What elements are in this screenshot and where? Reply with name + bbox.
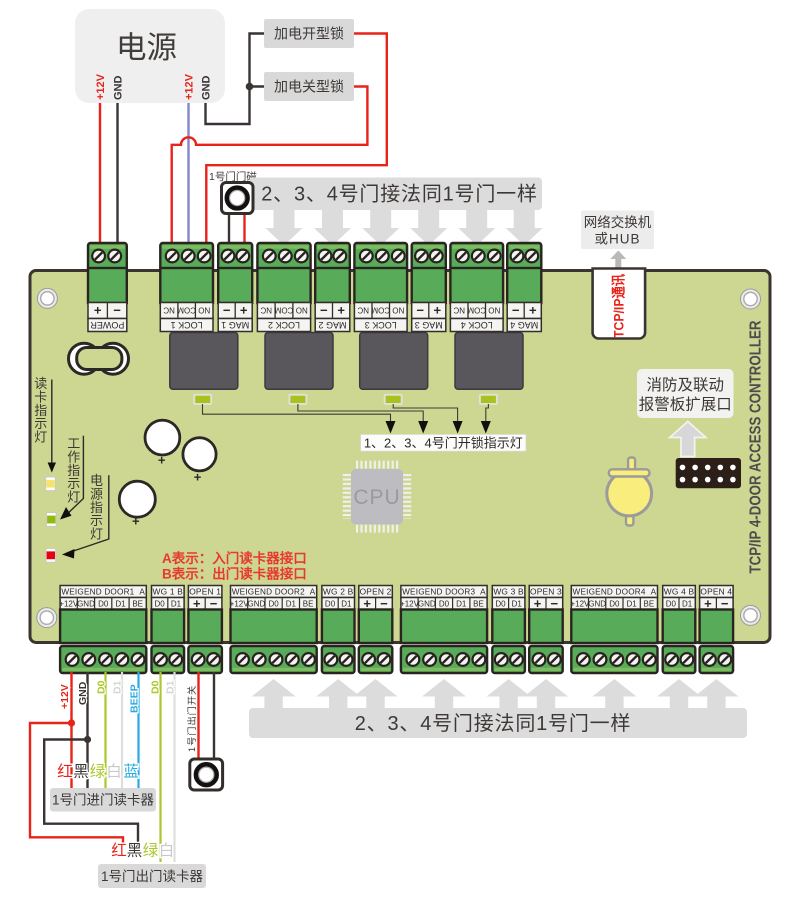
svg-text:D1: D1 (286, 599, 297, 608)
svg-text:WEIGEND DOOR4 A: WEIGEND DOOR4 A (573, 588, 657, 597)
svg-text:D0: D0 (150, 680, 162, 694)
svg-text:GND: GND (588, 599, 606, 608)
svg-text:COM: COM (274, 306, 293, 315)
svg-text:+: + (93, 303, 101, 318)
svg-text:NC: NC (453, 306, 465, 315)
svg-text:D1: D1 (112, 680, 124, 694)
svg-text:BE: BE (644, 599, 655, 608)
svg-text:GND: GND (201, 76, 213, 101)
svg-text:NO: NO (392, 306, 404, 315)
svg-text:红: 红 (57, 763, 73, 781)
svg-text:D0: D0 (98, 599, 109, 608)
svg-text:B表示：出门读卡器接口: B表示：出门读卡器接口 (162, 566, 307, 582)
svg-text:WEIGEND DOOR3 A: WEIGEND DOOR3 A (402, 588, 486, 597)
svg-text:D1: D1 (115, 599, 126, 608)
svg-text:+: + (239, 303, 247, 318)
svg-text:−: − (320, 303, 328, 318)
svg-text:BE: BE (132, 599, 143, 608)
svg-text:WG 2 B: WG 2 B (323, 587, 354, 597)
svg-text:电源: 电源 (116, 31, 177, 65)
svg-text:GND: GND (77, 599, 95, 608)
svg-text:D1: D1 (165, 680, 177, 694)
svg-text:+: + (337, 303, 345, 318)
svg-text:绿: 绿 (143, 842, 159, 860)
svg-text:BE: BE (473, 599, 484, 608)
svg-text:NC: NC (163, 306, 175, 315)
svg-text:D0: D0 (155, 599, 166, 608)
svg-text:白: 白 (106, 763, 122, 781)
svg-text:OPEN 3: OPEN 3 (530, 587, 562, 597)
svg-text:NC: NC (357, 306, 369, 315)
svg-text:COM: COM (177, 306, 196, 315)
svg-text:+: + (158, 453, 166, 468)
svg-text:D1: D1 (627, 599, 638, 608)
svg-text:WG 1 B: WG 1 B (153, 587, 184, 597)
svg-text:LOCK 2: LOCK 2 (268, 320, 300, 330)
svg-text:白: 白 (159, 842, 175, 860)
svg-text:MAG 3: MAG 3 (415, 320, 443, 330)
svg-text:+12V: +12V (95, 73, 107, 100)
svg-text:+: + (194, 470, 202, 485)
svg-text:BE: BE (303, 599, 314, 608)
svg-text:绿: 绿 (90, 763, 106, 781)
svg-text:D0: D0 (325, 599, 336, 608)
svg-text:NO: NO (488, 306, 500, 315)
svg-text:D0: D0 (439, 599, 450, 608)
svg-text:LOCK 4: LOCK 4 (461, 320, 493, 330)
svg-text:报警板扩展口: 报警板扩展口 (639, 396, 732, 414)
svg-text:+: + (132, 514, 140, 529)
svg-text:CPU: CPU (353, 486, 400, 509)
svg-text:LOCK 1: LOCK 1 (171, 320, 203, 330)
svg-text:WG 4 B: WG 4 B (664, 587, 695, 597)
svg-text:1、2、3、4号门开锁指示灯: 1、2、3、4号门开锁指示灯 (364, 435, 523, 450)
svg-text:−: − (113, 303, 121, 318)
svg-text:OPEN 1: OPEN 1 (189, 587, 221, 597)
svg-text:+12V: +12V (230, 599, 250, 608)
svg-text:WEIGEND DOOR1 A: WEIGEND DOOR1 A (61, 588, 145, 597)
svg-text:+: + (529, 303, 537, 318)
svg-text:TCP/IP 4-DOOR ACCESS CONTROLL: TCP/IP 4-DOOR ACCESS CONTROLLER (748, 321, 765, 574)
svg-text:D1: D1 (171, 599, 182, 608)
svg-text:MAG 4: MAG 4 (510, 320, 538, 330)
svg-text:NO: NO (296, 306, 308, 315)
svg-text:D0: D0 (609, 599, 620, 608)
svg-text:蓝: 蓝 (123, 763, 139, 781)
svg-text:−: − (416, 303, 424, 318)
svg-text:TCP/IP通讯: TCP/IP通讯 (611, 274, 627, 338)
svg-text:D0: D0 (495, 599, 506, 608)
svg-text:或HUB: 或HUB (594, 232, 640, 247)
svg-text:GND: GND (418, 599, 436, 608)
svg-text:1号门出门开关: 1号门出门开关 (186, 685, 197, 752)
svg-text:−: − (222, 303, 230, 318)
svg-text:GND: GND (77, 681, 89, 705)
svg-text:GND: GND (113, 76, 125, 101)
svg-text:NO: NO (198, 306, 210, 315)
svg-text:加电关型锁: 加电关型锁 (274, 79, 344, 95)
svg-text:D0: D0 (268, 599, 279, 608)
svg-text:黑: 黑 (127, 843, 143, 860)
svg-text:WG 3 B: WG 3 B (493, 587, 524, 597)
svg-text:+12V: +12V (400, 599, 420, 608)
svg-text:MAG 2: MAG 2 (318, 320, 346, 330)
svg-text:D1: D1 (456, 599, 467, 608)
svg-text:2、3、4号门接法同1号门一样: 2、3、4号门接法同1号门一样 (355, 712, 632, 735)
svg-text:+12V: +12V (59, 599, 79, 608)
svg-text:+12V: +12V (184, 73, 196, 100)
svg-text:D0: D0 (96, 680, 108, 694)
svg-text:COM: COM (467, 306, 486, 315)
svg-text:红: 红 (111, 842, 127, 860)
svg-text:网络交换机: 网络交换机 (584, 214, 652, 230)
svg-text:D1: D1 (512, 599, 523, 608)
svg-text:+: + (433, 303, 441, 318)
svg-text:1号门出门读卡器: 1号门出门读卡器 (101, 869, 204, 884)
svg-text:COM: COM (371, 306, 390, 315)
svg-text:LOCK 3: LOCK 3 (365, 320, 397, 330)
svg-text:BEEP: BEEP (129, 684, 141, 713)
svg-text:POWER: POWER (90, 320, 125, 330)
svg-text:黑: 黑 (73, 764, 89, 781)
svg-text:−: − (512, 303, 520, 318)
svg-text:+12V: +12V (59, 684, 71, 709)
svg-text:MAG 1: MAG 1 (221, 320, 249, 330)
svg-text:A表示：入门读卡器接口: A表示：入门读卡器接口 (162, 550, 307, 566)
svg-text:读卡指示灯: 读卡指示灯 (34, 376, 47, 445)
svg-text:OPEN 4: OPEN 4 (700, 587, 732, 597)
svg-text:D1: D1 (682, 599, 693, 608)
svg-text:WEIGEND DOOR2 A: WEIGEND DOOR2 A (232, 588, 316, 597)
svg-text:加电开型锁: 加电开型锁 (274, 26, 344, 42)
svg-text:2、3、4号门接法同1号门一样: 2、3、4号门接法同1号门一样 (261, 183, 538, 206)
svg-text:GND: GND (247, 599, 265, 608)
svg-text:电源指示灯: 电源指示灯 (90, 473, 103, 542)
svg-text:+12V: +12V (570, 599, 590, 608)
svg-text:NC: NC (260, 306, 272, 315)
svg-text:1号门进门读卡器: 1号门进门读卡器 (52, 793, 155, 808)
svg-text:工作指示灯: 工作指示灯 (67, 436, 80, 505)
svg-text:D0: D0 (666, 599, 677, 608)
svg-text:消防及联动: 消防及联动 (647, 376, 725, 394)
svg-text:D1: D1 (341, 599, 352, 608)
svg-text:OPEN 2: OPEN 2 (360, 587, 392, 597)
